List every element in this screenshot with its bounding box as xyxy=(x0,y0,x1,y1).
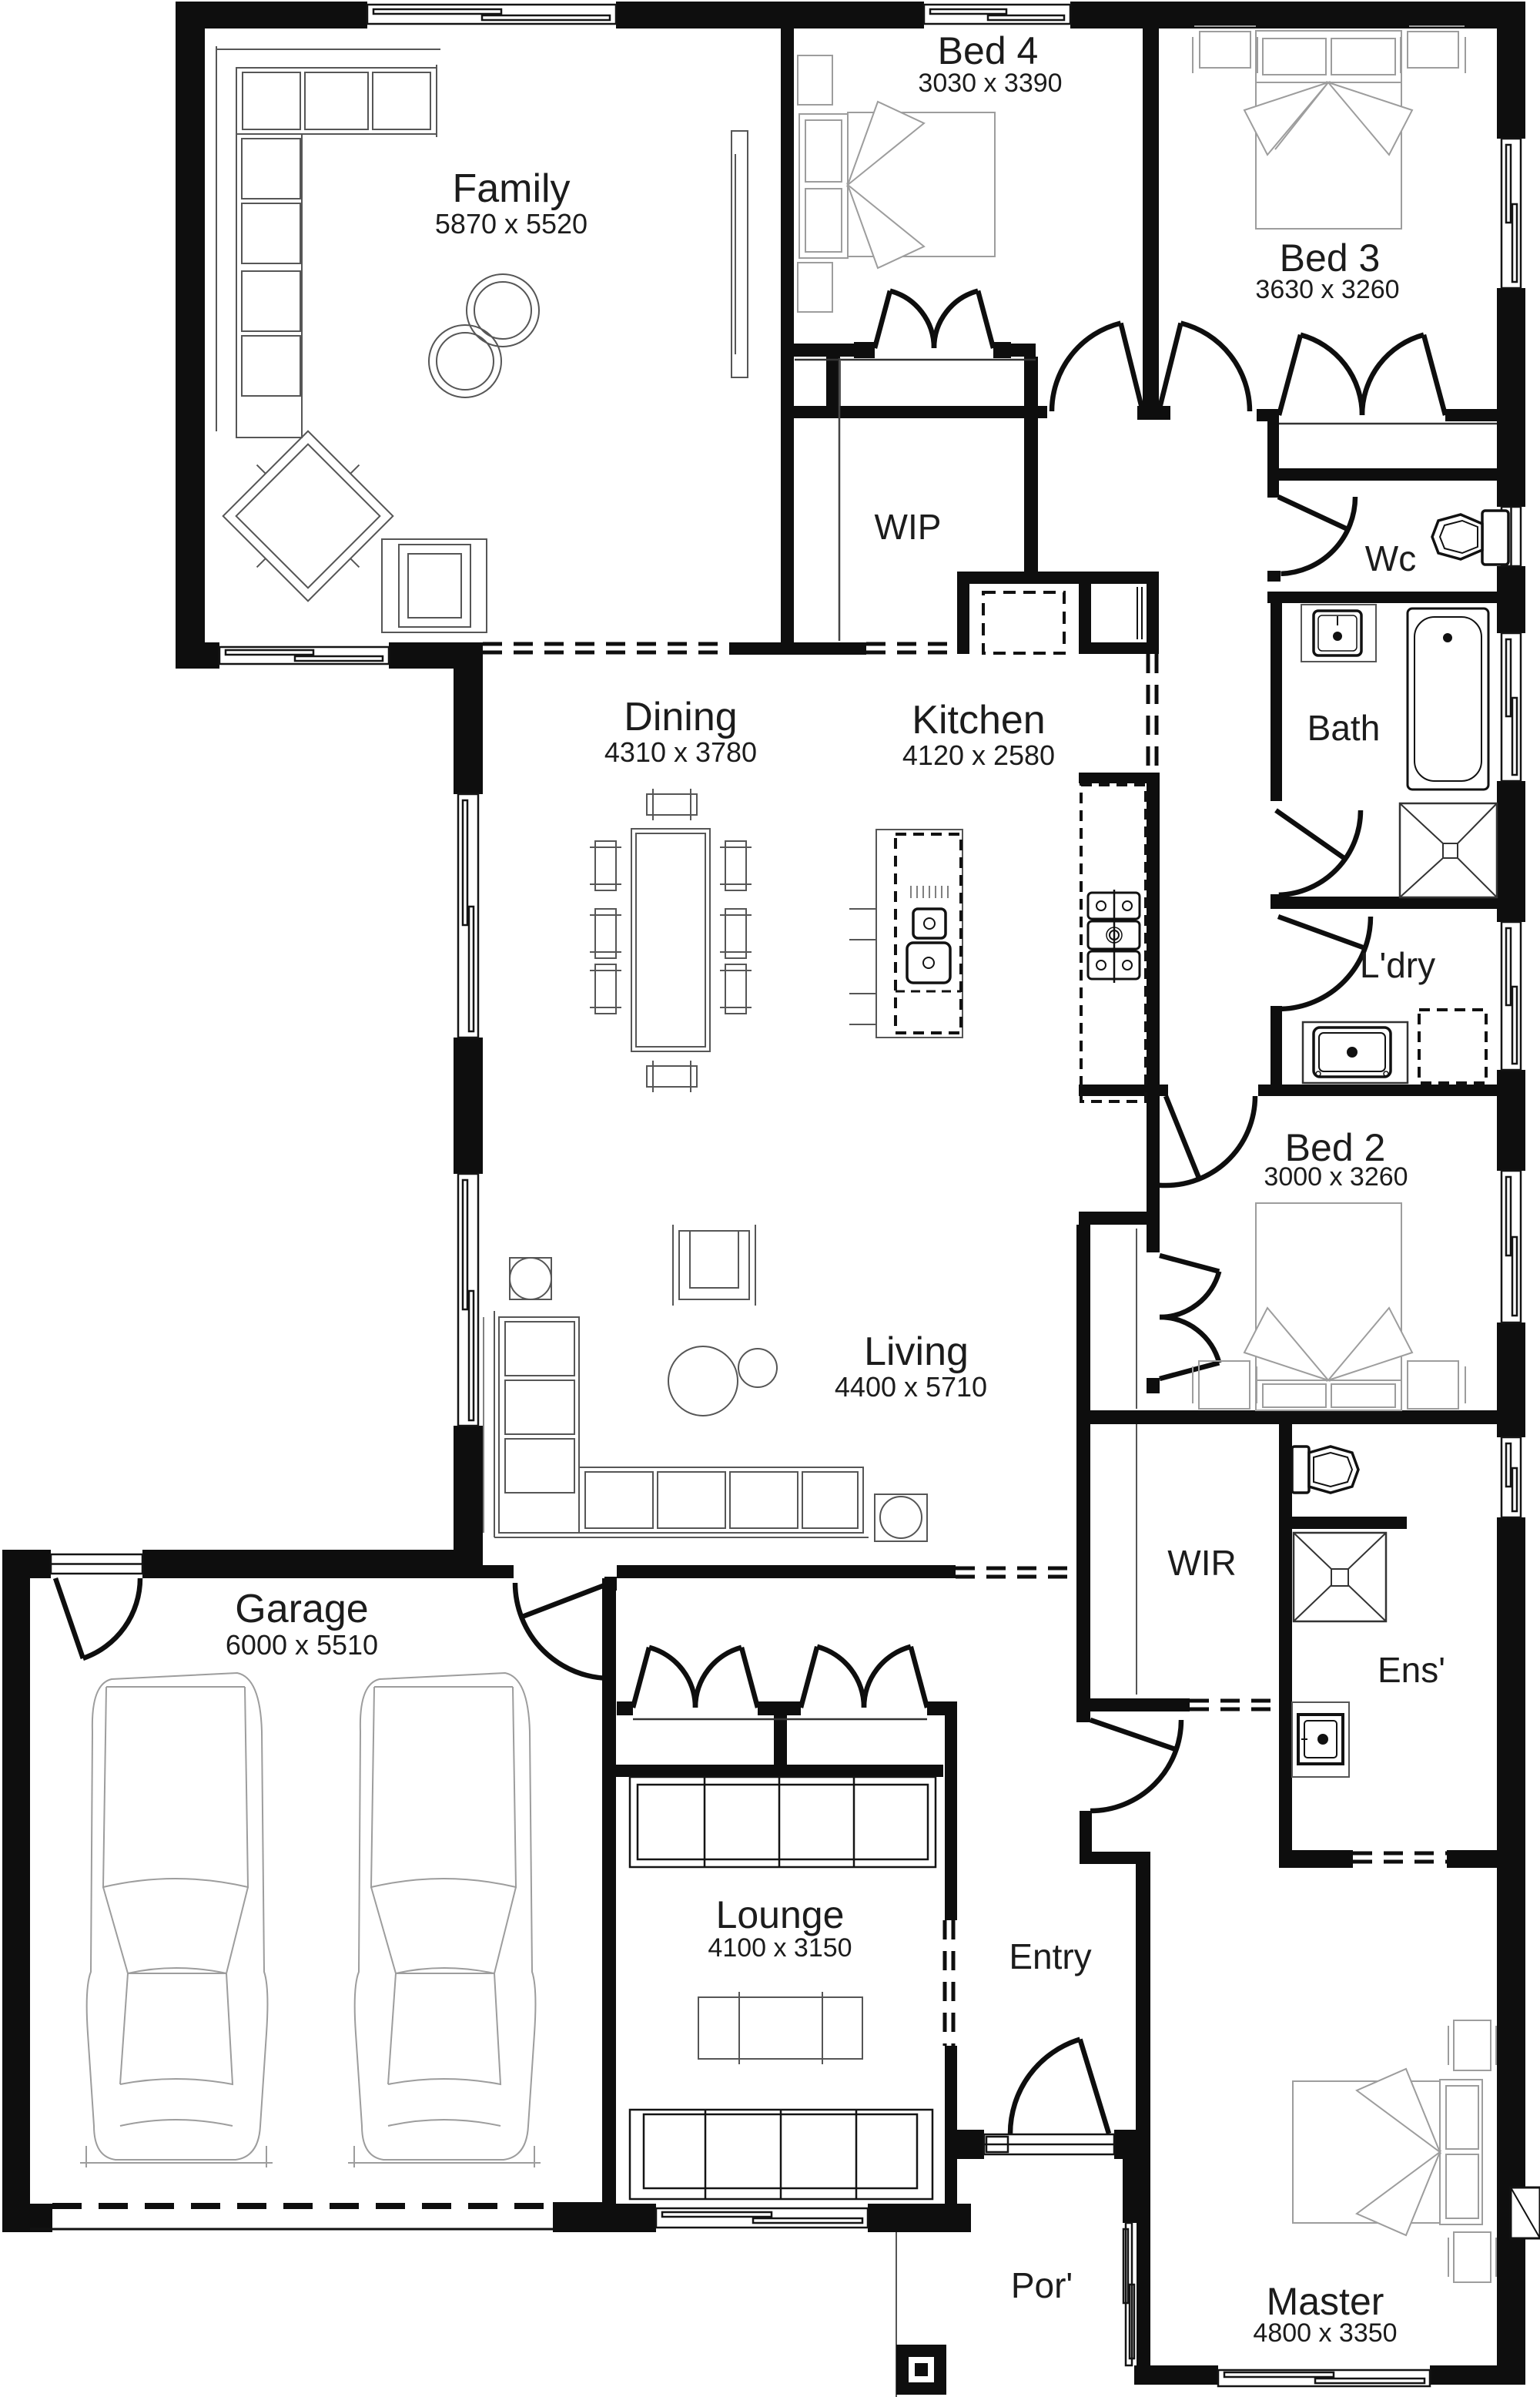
svg-text:Family: Family xyxy=(452,166,570,211)
svg-text:4100 x 3150: 4100 x 3150 xyxy=(708,1933,852,1963)
svg-text:L'dry: L'dry xyxy=(1360,945,1435,985)
svg-text:Kitchen: Kitchen xyxy=(912,698,1045,743)
svg-text:Dining: Dining xyxy=(624,695,737,739)
svg-text:WIR: WIR xyxy=(1167,1543,1236,1583)
svg-text:Bed 3: Bed 3 xyxy=(1280,236,1381,280)
svg-text:5870 x 5520: 5870 x 5520 xyxy=(435,208,588,240)
svg-text:Entry: Entry xyxy=(1009,1936,1091,1976)
svg-text:Por': Por' xyxy=(1011,2265,1073,2305)
svg-text:Bed 4: Bed 4 xyxy=(938,29,1039,72)
svg-text:Garage: Garage xyxy=(235,1587,368,1631)
svg-text:Master: Master xyxy=(1267,2280,1384,2323)
svg-text:Wc: Wc xyxy=(1365,538,1416,578)
svg-text:6000 x 5510: 6000 x 5510 xyxy=(226,1629,378,1661)
svg-text:3000 x 3260: 3000 x 3260 xyxy=(1264,1162,1408,1192)
svg-text:Living: Living xyxy=(864,1329,969,1374)
svg-text:3030 x 3390: 3030 x 3390 xyxy=(918,69,1062,98)
svg-text:Lounge: Lounge xyxy=(716,1893,845,1936)
svg-text:4310 x 3780: 4310 x 3780 xyxy=(604,736,757,768)
svg-text:Bath: Bath xyxy=(1307,708,1381,748)
svg-text:Ens': Ens' xyxy=(1378,1650,1445,1690)
svg-text:4400 x 5710: 4400 x 5710 xyxy=(835,1371,987,1403)
svg-text:4800 x 3350: 4800 x 3350 xyxy=(1253,2318,1397,2348)
svg-text:3630 x 3260: 3630 x 3260 xyxy=(1255,275,1399,304)
svg-text:WIP: WIP xyxy=(875,507,942,547)
svg-text:4120 x 2580: 4120 x 2580 xyxy=(902,739,1055,771)
